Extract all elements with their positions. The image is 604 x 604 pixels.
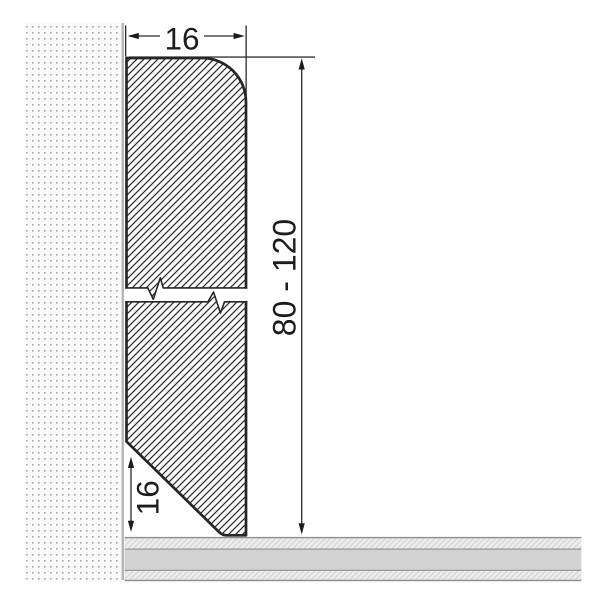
svg-text:80 - 120: 80 - 120	[266, 219, 302, 336]
svg-text:16: 16	[164, 21, 199, 57]
svg-text:16: 16	[129, 480, 165, 515]
